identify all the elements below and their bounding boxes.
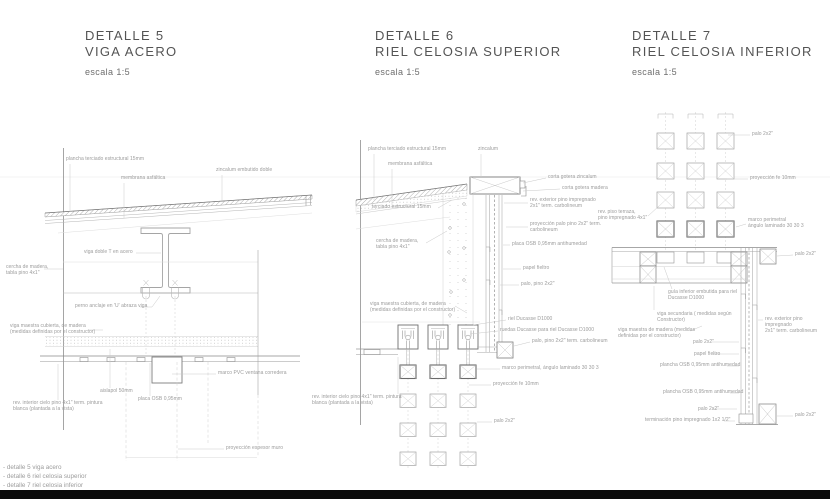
annotation-label: rev. exterior pino impregnado 2x1" term.… bbox=[765, 317, 830, 335]
annotation-label: palo 2x2" bbox=[698, 407, 719, 413]
legend-item-detalle-5: - detalle 5 viga acero bbox=[3, 463, 87, 472]
detail-7-scale: escala 1:5 bbox=[632, 67, 677, 77]
detail-5-scale: escala 1:5 bbox=[85, 67, 130, 77]
annotation-label: papel fieltro bbox=[694, 352, 720, 358]
annotation-label: rev. piso terraza, pino impregnado 4x1" bbox=[598, 210, 647, 222]
legend-item-detalle-7: - detalle 7 riel celosia inferior bbox=[3, 481, 87, 490]
annotation-label: rev. exterior pino impregnado 2x1" term.… bbox=[530, 198, 596, 210]
detail-7-title: DETALLE 7 RIEL CELOSIA INFERIOR bbox=[632, 28, 813, 60]
annotation-label: ruedas Ducasse para riel Ducasse D1000 bbox=[500, 328, 594, 334]
drawing-sheet: DETALLE 5 VIGA ACERO escala 1:5 DETALLE … bbox=[0, 0, 830, 500]
annotation-label: riel Ducasse D1000 bbox=[508, 317, 552, 323]
annotation-label: marco perimetral ángulo laminado 30 30 3 bbox=[748, 218, 804, 230]
annotation-label: cercha de madera, tabla pino 4x1" bbox=[376, 239, 418, 251]
annotation-label: palo, pino 2x2" bbox=[521, 282, 555, 288]
detail-7-linework bbox=[612, 112, 793, 425]
bottom-title-bar bbox=[0, 490, 830, 499]
annotation-label: palo 2x2" bbox=[693, 340, 714, 346]
annotation-label: terciado estructural 15mm bbox=[372, 205, 431, 211]
pvc-window-frame bbox=[152, 357, 182, 383]
annotation-label: aislapol 50mm bbox=[100, 389, 133, 395]
detail-5-title: DETALLE 5 VIGA ACERO bbox=[85, 28, 177, 60]
annotation-label: palo, pino 2x2" term. carbolineum bbox=[532, 339, 608, 345]
annotation-label: corta gotera zincalum bbox=[548, 175, 597, 181]
annotation-label: palo 2x2" bbox=[752, 132, 773, 138]
detail-5-title-line2: VIGA ACERO bbox=[85, 44, 177, 60]
annotation-label: rev. interior cielo pino 4x1" term. pint… bbox=[312, 395, 402, 407]
annotation-label: proyección fe 10mm bbox=[750, 176, 796, 182]
annotation-label: viga maestra cubierta, de madera (medida… bbox=[370, 302, 455, 314]
annotation-label: zincalum bbox=[478, 147, 498, 153]
detail-7-title-line2: RIEL CELOSIA INFERIOR bbox=[632, 44, 813, 60]
annotation-label: corta gotera madera bbox=[562, 186, 608, 192]
annotation-label: marco perimetral, ángulo laminado 30 30 … bbox=[502, 366, 599, 372]
detail-7-title-line1: DETALLE 7 bbox=[632, 28, 813, 44]
legend: - detalle 5 viga acero - detalle 6 riel … bbox=[3, 463, 87, 490]
annotation-label: palo 2x2" bbox=[795, 252, 816, 258]
annotation-label: placa OSB 0,95mm antihumedad bbox=[512, 242, 587, 248]
annotation-label: plancha OSB 0,95mm antihumedad bbox=[663, 390, 743, 396]
annotation-label: plancha OSB 0,95mm antihumedad bbox=[660, 363, 740, 369]
annotation-label: marco PVC ventana corredera bbox=[218, 371, 287, 377]
annotation-label: proyección palo pino 2x2" term. carbolin… bbox=[530, 222, 601, 234]
annotation-label: papel fieltro bbox=[523, 266, 549, 272]
annotation-label: membrana asfáltica bbox=[388, 162, 432, 168]
detail-6-scale: escala 1:5 bbox=[375, 67, 420, 77]
annotation-label: viga doble T en acero bbox=[84, 250, 133, 256]
detail-5-title-line1: DETALLE 5 bbox=[85, 28, 177, 44]
annotation-label: membrana asfáltica bbox=[121, 176, 165, 182]
annotation-label: terminación pino impregnado 1x2 1/2" bbox=[645, 418, 731, 424]
annotation-label: viga maestra cubierta, de madera (medida… bbox=[10, 324, 95, 336]
annotation-label: proyección fe 10mm bbox=[493, 382, 539, 388]
legend-item-detalle-6: - detalle 6 riel celosia superior bbox=[3, 472, 87, 481]
annotation-label: proyección espesor muro bbox=[226, 446, 283, 452]
detail-6-title: DETALLE 6 RIEL CELOSIA SUPERIOR bbox=[375, 28, 561, 60]
annotation-label: palo 2x2" bbox=[494, 419, 515, 425]
annotation-label: rev. interior cielo pino 4x1" term. pint… bbox=[13, 401, 103, 413]
annotation-label: plancha terciado estructural 15mm bbox=[368, 147, 446, 153]
annotation-label: cercha de madera, tabla pino 4x1" bbox=[6, 265, 48, 277]
annotation-label: zincalum embutido doble bbox=[216, 168, 272, 174]
annotation-label: viga maestra de madera (medidas definida… bbox=[618, 328, 695, 340]
annotation-label: guía inferior embutida para riel Ducasse… bbox=[668, 290, 737, 302]
annotation-label: plancha terciado estructural 15mm bbox=[66, 157, 144, 163]
annotation-label: perno anclaje en 'U' abraza viga bbox=[75, 304, 147, 310]
annotation-label: palo 2x2" bbox=[795, 413, 816, 419]
annotation-label: viga secundaria ( medidas según Construc… bbox=[657, 312, 732, 324]
detail-6-title-line1: DETALLE 6 bbox=[375, 28, 561, 44]
detail-6-title-line2: RIEL CELOSIA SUPERIOR bbox=[375, 44, 561, 60]
annotation-label: placa OSB 0,95mm bbox=[138, 397, 182, 403]
steel-i-beam bbox=[141, 228, 190, 293]
